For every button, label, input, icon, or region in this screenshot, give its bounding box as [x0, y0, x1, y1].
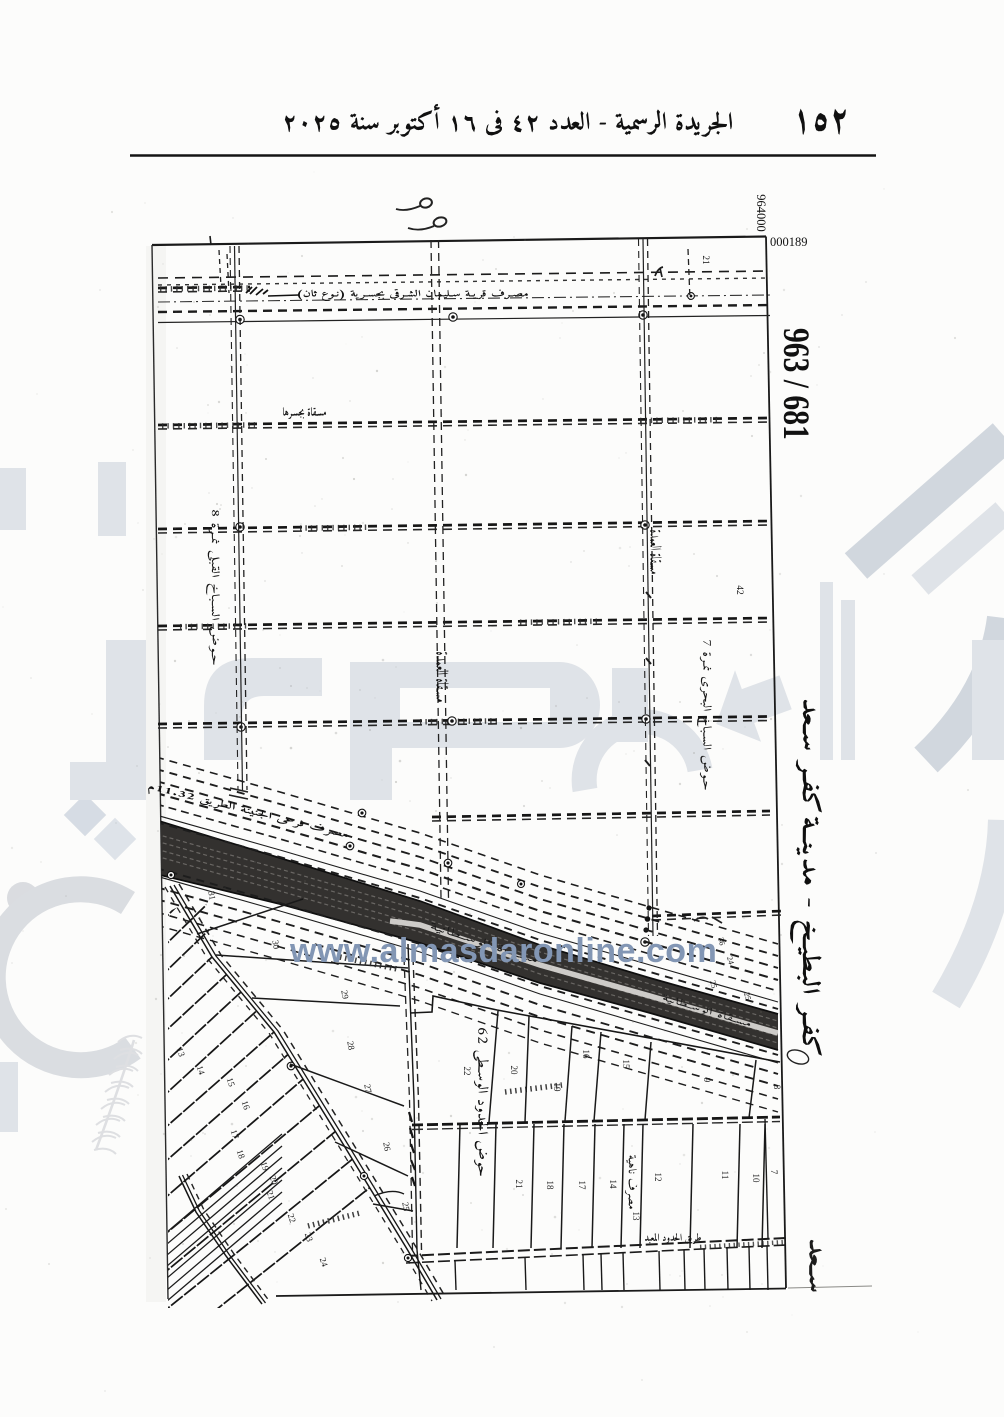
svg-text:12: 12: [653, 1173, 663, 1182]
svg-text:13: 13: [631, 1212, 641, 1222]
svg-text:18: 18: [545, 1181, 555, 1191]
svg-text:31: 31: [206, 890, 217, 901]
svg-text:14: 14: [608, 1180, 618, 1190]
svg-text:20: 20: [509, 1066, 519, 1076]
svg-text:15: 15: [621, 1060, 631, 1070]
svg-text:11: 11: [720, 1171, 730, 1180]
svg-text:17: 17: [577, 1181, 587, 1191]
svg-text:7: 7: [769, 1170, 779, 1175]
svg-text:8: 8: [772, 1085, 782, 1090]
svg-text:963 / 681: 963 / 681: [775, 328, 816, 440]
svg-text:000189: 000189: [770, 235, 808, 249]
svg-text:10: 10: [751, 1174, 761, 1184]
svg-text:www.almasdaronline.com: www.almasdaronline.com: [289, 932, 717, 970]
svg-text:21: 21: [701, 256, 711, 265]
svg-text:16: 16: [581, 1050, 591, 1060]
svg-text:42: 42: [734, 585, 744, 595]
svg-text:9: 9: [702, 1078, 712, 1083]
svg-text:21: 21: [514, 1180, 524, 1189]
svg-text:964000: 964000: [754, 194, 768, 232]
svg-text:19: 19: [552, 1083, 562, 1093]
svg-text:22: 22: [462, 1067, 472, 1076]
